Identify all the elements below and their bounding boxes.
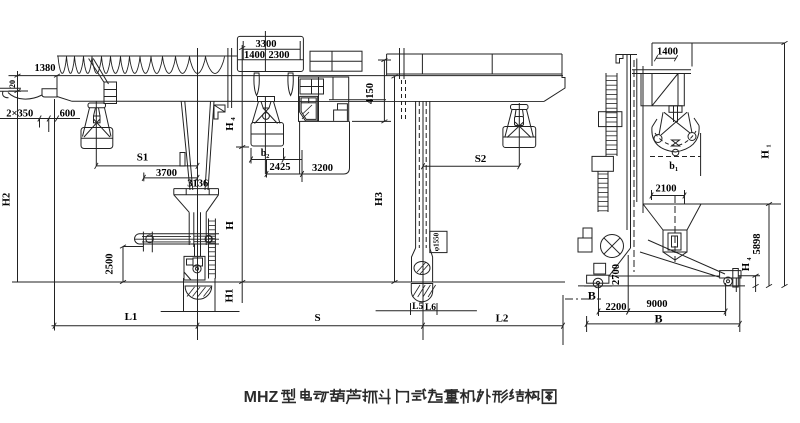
- svg-text:S1: S1: [137, 152, 149, 164]
- svg-text:B: B: [588, 289, 596, 303]
- svg-text:1400: 1400: [244, 50, 265, 61]
- svg-text:1: 1: [766, 144, 773, 147]
- svg-text:1380: 1380: [35, 63, 56, 74]
- svg-text:2700: 2700: [611, 264, 622, 285]
- svg-text:600: 600: [60, 109, 76, 120]
- svg-text:H1: H1: [224, 288, 236, 302]
- svg-text:L2: L2: [496, 313, 509, 325]
- svg-text:9000: 9000: [647, 299, 668, 310]
- svg-text:5898: 5898: [752, 234, 763, 255]
- svg-text:4150: 4150: [365, 83, 376, 104]
- svg-text:H: H: [224, 221, 236, 230]
- svg-text:B: B: [654, 312, 662, 326]
- svg-text:3700: 3700: [156, 168, 177, 179]
- svg-text:2425: 2425: [270, 162, 291, 173]
- svg-text:S2: S2: [475, 153, 487, 165]
- svg-text:2: 2: [266, 153, 269, 160]
- svg-text:2500: 2500: [105, 254, 116, 275]
- svg-text:H: H: [225, 122, 236, 130]
- svg-text:1400: 1400: [657, 46, 678, 57]
- svg-text:2200: 2200: [606, 302, 627, 313]
- svg-text:S: S: [314, 312, 320, 324]
- svg-text:H: H: [760, 150, 772, 159]
- svg-text:3300: 3300: [256, 39, 277, 50]
- svg-text:L1: L1: [125, 311, 138, 323]
- svg-text:2×350: 2×350: [6, 109, 33, 120]
- svg-text:1: 1: [675, 166, 678, 173]
- svg-text:L5: L5: [412, 302, 423, 312]
- svg-text:L6: L6: [425, 303, 436, 313]
- svg-text:2300: 2300: [269, 50, 290, 61]
- svg-text:2100: 2100: [656, 184, 677, 195]
- svg-text:3200: 3200: [312, 163, 333, 174]
- svg-text:φ1550: φ1550: [433, 232, 441, 251]
- svg-text:4: 4: [747, 258, 753, 261]
- svg-text:3136: 3136: [187, 178, 208, 189]
- svg-text:20: 20: [8, 80, 17, 88]
- svg-text:H3: H3: [373, 191, 385, 206]
- svg-text:H: H: [741, 263, 752, 271]
- svg-text:MHZ: MHZ: [244, 389, 279, 406]
- svg-text:H2: H2: [2, 193, 13, 206]
